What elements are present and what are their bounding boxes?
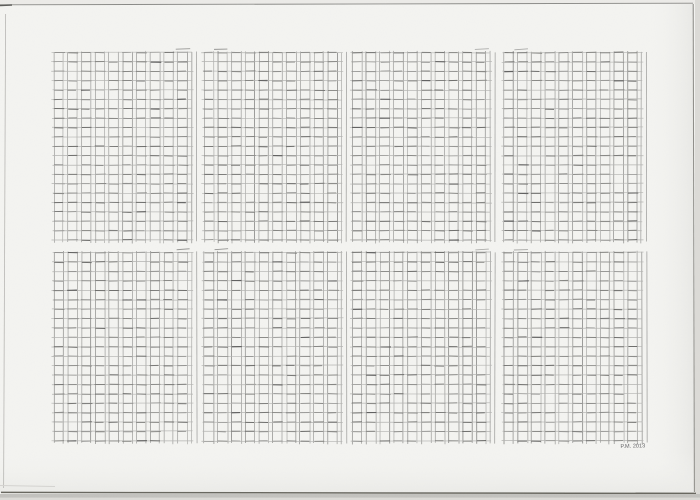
svg-text:P.M. 2013: P.M. 2013 [620,443,645,450]
